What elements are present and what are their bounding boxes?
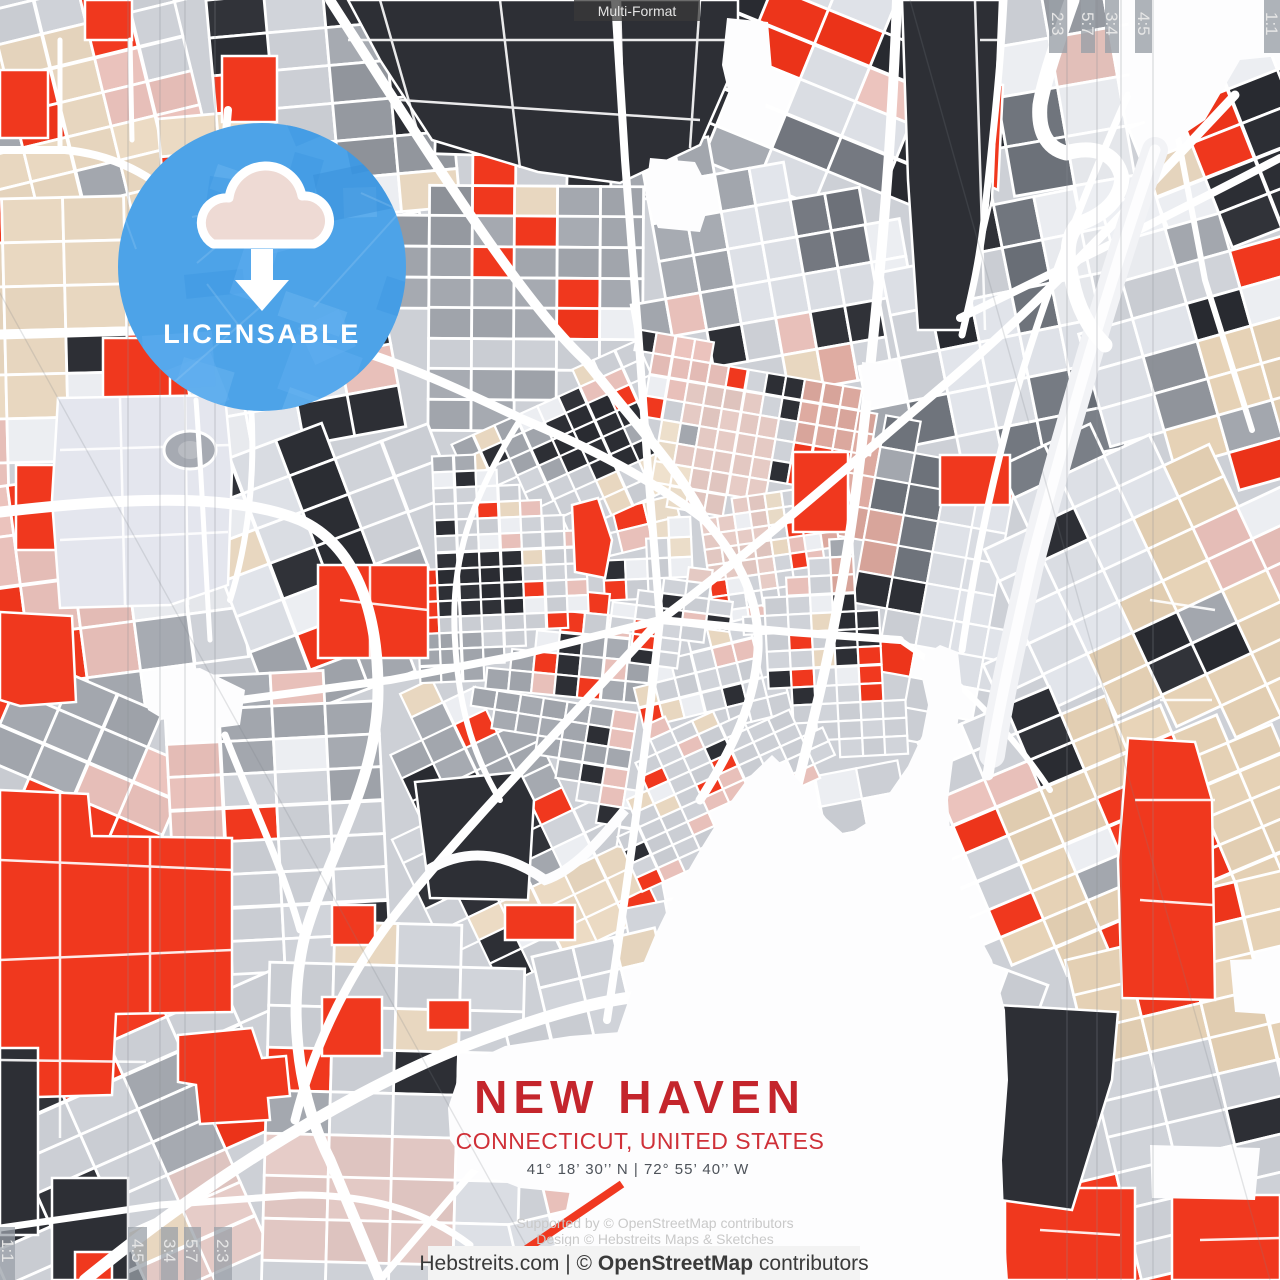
svg-text:5:7: 5:7	[182, 1239, 201, 1263]
svg-text:1:1: 1:1	[1262, 12, 1280, 36]
svg-text:Design © Hebstreits Maps & Ske: Design © Hebstreits Maps & Sketches	[536, 1231, 774, 1247]
svg-text:Hebstreits.com | © OpenStreetM: Hebstreits.com | © OpenStreetMap contrib…	[419, 1252, 868, 1275]
svg-text:4:5: 4:5	[128, 1239, 147, 1263]
svg-text:LICENSABLE: LICENSABLE	[163, 319, 361, 349]
svg-text:Multi-Format: Multi-Format	[598, 3, 677, 19]
svg-text:4:5: 4:5	[1134, 12, 1153, 36]
svg-text:2:3: 2:3	[1048, 12, 1067, 36]
svg-text:3:4: 3:4	[1102, 12, 1121, 36]
svg-text:1:1: 1:1	[0, 1239, 17, 1263]
svg-text:NEW HAVEN: NEW HAVEN	[474, 1071, 806, 1123]
svg-text:5:7: 5:7	[1078, 12, 1097, 36]
svg-text:Supported by © OpenStreetMap c: Supported by © OpenStreetMap contributor…	[516, 1215, 793, 1231]
svg-text:41° 18’ 30’’ N | 72° 55’: 41° 18’ 30’’ N | 72° 55’ 40’’ W	[527, 1161, 750, 1178]
svg-text:CONNECTICUT, UNITED STATES: CONNECTICUT, UNITED STATES	[456, 1128, 825, 1154]
svg-text:3:4: 3:4	[160, 1239, 179, 1263]
svg-text:2:3: 2:3	[213, 1239, 232, 1263]
